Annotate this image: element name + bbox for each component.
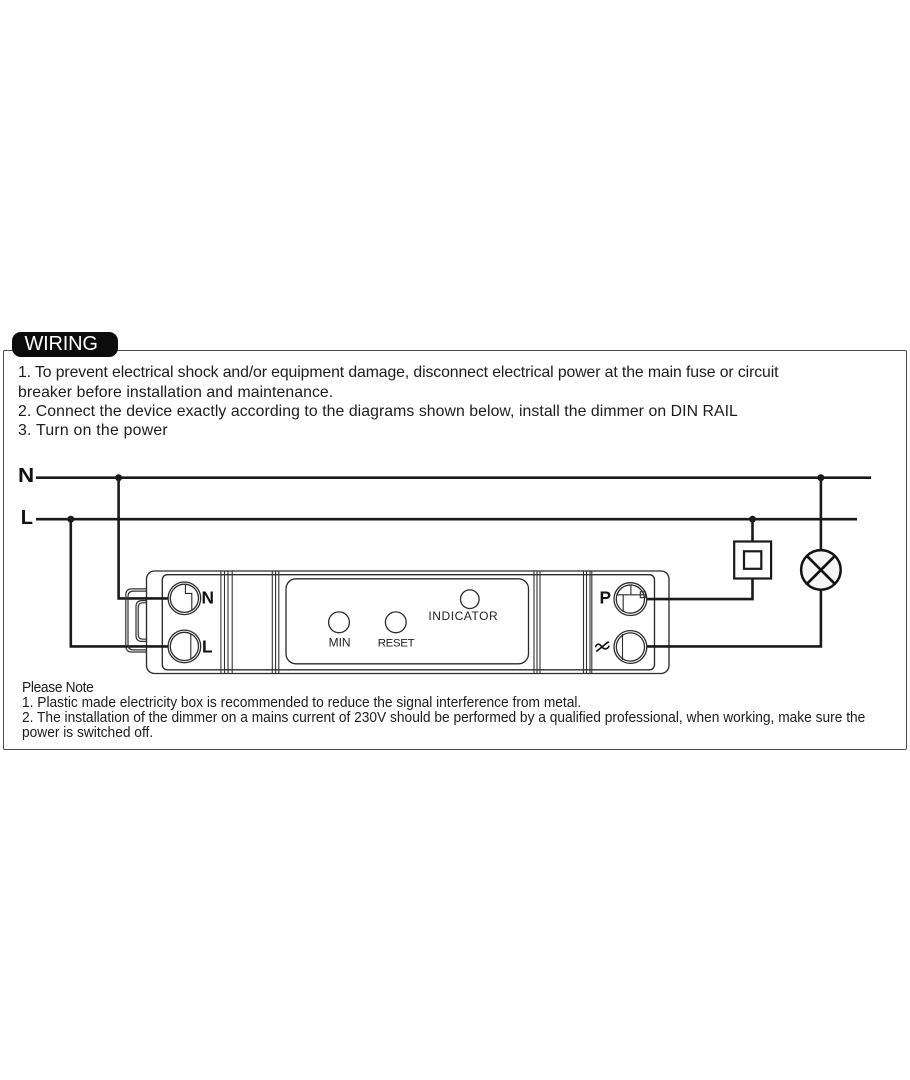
svg-text:P: P [600, 588, 612, 608]
svg-text:N: N [202, 588, 214, 608]
svg-text:L: L [202, 637, 213, 657]
svg-text:MIN: MIN [329, 635, 351, 649]
svg-text:INDICATOR: INDICATOR [428, 609, 498, 623]
svg-text:RESET: RESET [378, 637, 415, 649]
